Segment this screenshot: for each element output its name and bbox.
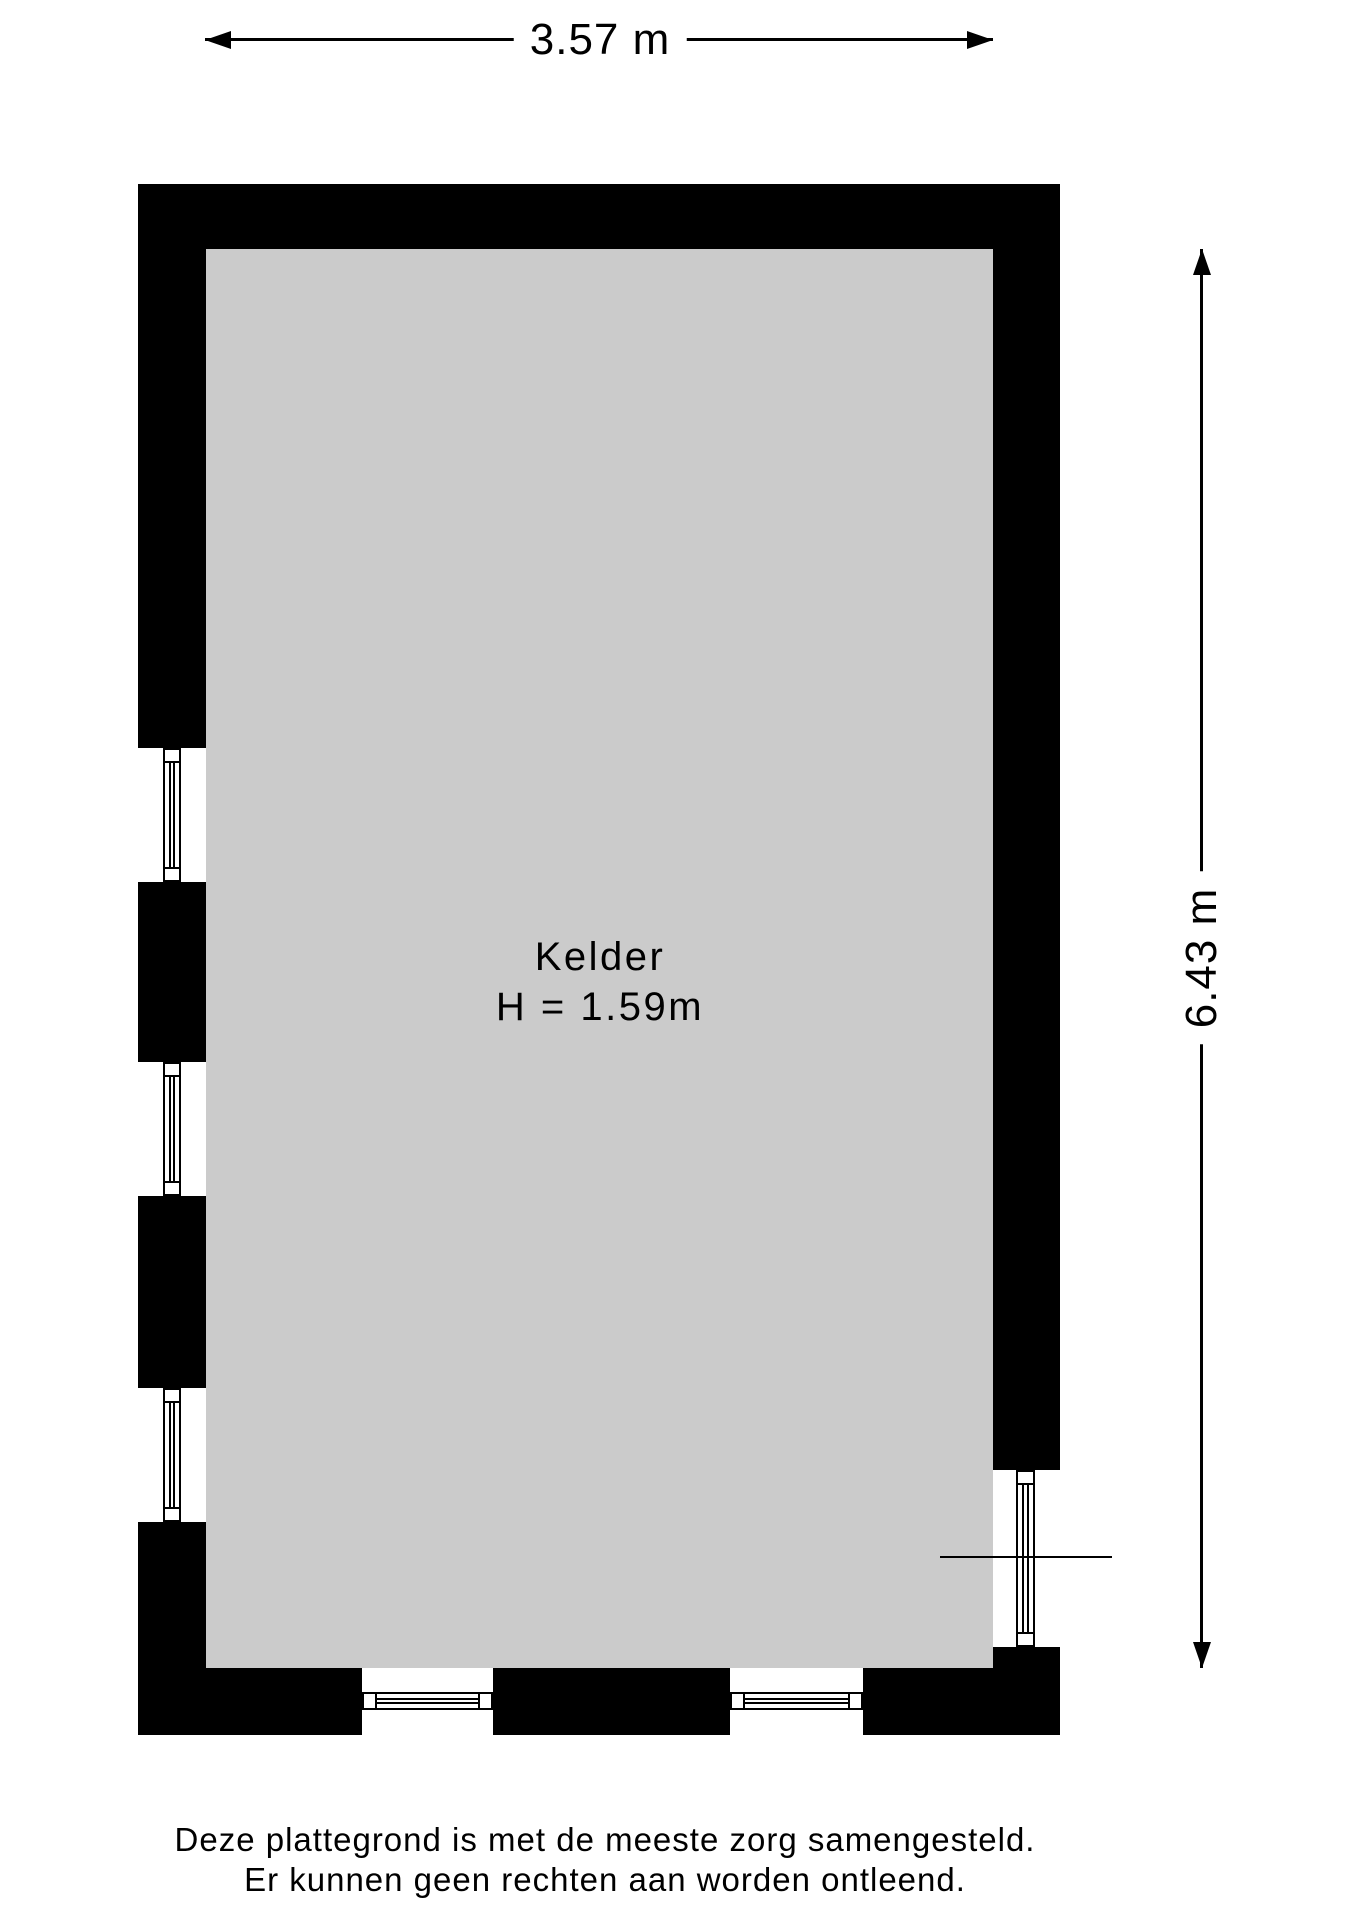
door-symbol-right	[1016, 1470, 1035, 1647]
window-pane-line	[745, 1698, 848, 1700]
disclaimer-line-1: Deze plattegrond is met de meeste zorg s…	[55, 1820, 1155, 1860]
window-frame-line	[165, 1075, 179, 1077]
arrowhead-right-icon	[967, 31, 993, 49]
window-pane-line	[1027, 1485, 1029, 1632]
window-frame-line	[848, 1694, 850, 1708]
room-label-block: Kelder H = 1.59m	[300, 932, 900, 1032]
arrowhead-up-icon	[1193, 249, 1211, 275]
room-height-label: H = 1.59m	[300, 982, 900, 1032]
window-pane-line	[169, 1077, 171, 1181]
window-pane-line	[1022, 1485, 1024, 1632]
arrowhead-left-icon	[205, 31, 231, 49]
window-pane-line	[173, 1077, 175, 1181]
room-name-label: Kelder	[300, 932, 900, 982]
window-frame-line	[1018, 1632, 1033, 1634]
window-frame-line	[165, 761, 179, 763]
floor-plan-page: 3.57 m 6.43 m Kelder H = 1.59m Deze plat…	[0, 0, 1358, 1920]
window-frame-line	[165, 867, 179, 869]
window-frame-line	[743, 1694, 745, 1708]
window-pane-line	[377, 1702, 478, 1704]
height-dimension-label: 6.43 m	[1177, 872, 1227, 1045]
window-pane-line	[169, 1403, 171, 1507]
window-frame-line	[478, 1694, 480, 1708]
window-frame-line	[1018, 1483, 1033, 1485]
arrowhead-down-icon	[1193, 1642, 1211, 1668]
door-threshold-line	[940, 1556, 1112, 1558]
window-frame-line	[375, 1694, 377, 1708]
window-pane-line	[173, 763, 175, 867]
disclaimer-line-2: Er kunnen geen rechten aan worden ontlee…	[55, 1860, 1155, 1900]
disclaimer-text: Deze plattegrond is met de meeste zorg s…	[55, 1820, 1155, 1900]
window-frame-line	[165, 1181, 179, 1183]
window-symbol-bottom-1	[362, 1692, 493, 1710]
window-pane-line	[169, 763, 171, 867]
window-pane-line	[173, 1403, 175, 1507]
window-symbol-left-2	[163, 1062, 181, 1196]
window-pane-line	[745, 1702, 848, 1704]
window-symbol-left-3	[163, 1388, 181, 1522]
window-symbol-left-1	[163, 748, 181, 882]
window-symbol-bottom-2	[730, 1692, 863, 1710]
window-frame-line	[165, 1401, 179, 1403]
window-frame-line	[165, 1507, 179, 1509]
width-dimension-label: 3.57 m	[514, 15, 687, 65]
window-pane-line	[377, 1698, 478, 1700]
